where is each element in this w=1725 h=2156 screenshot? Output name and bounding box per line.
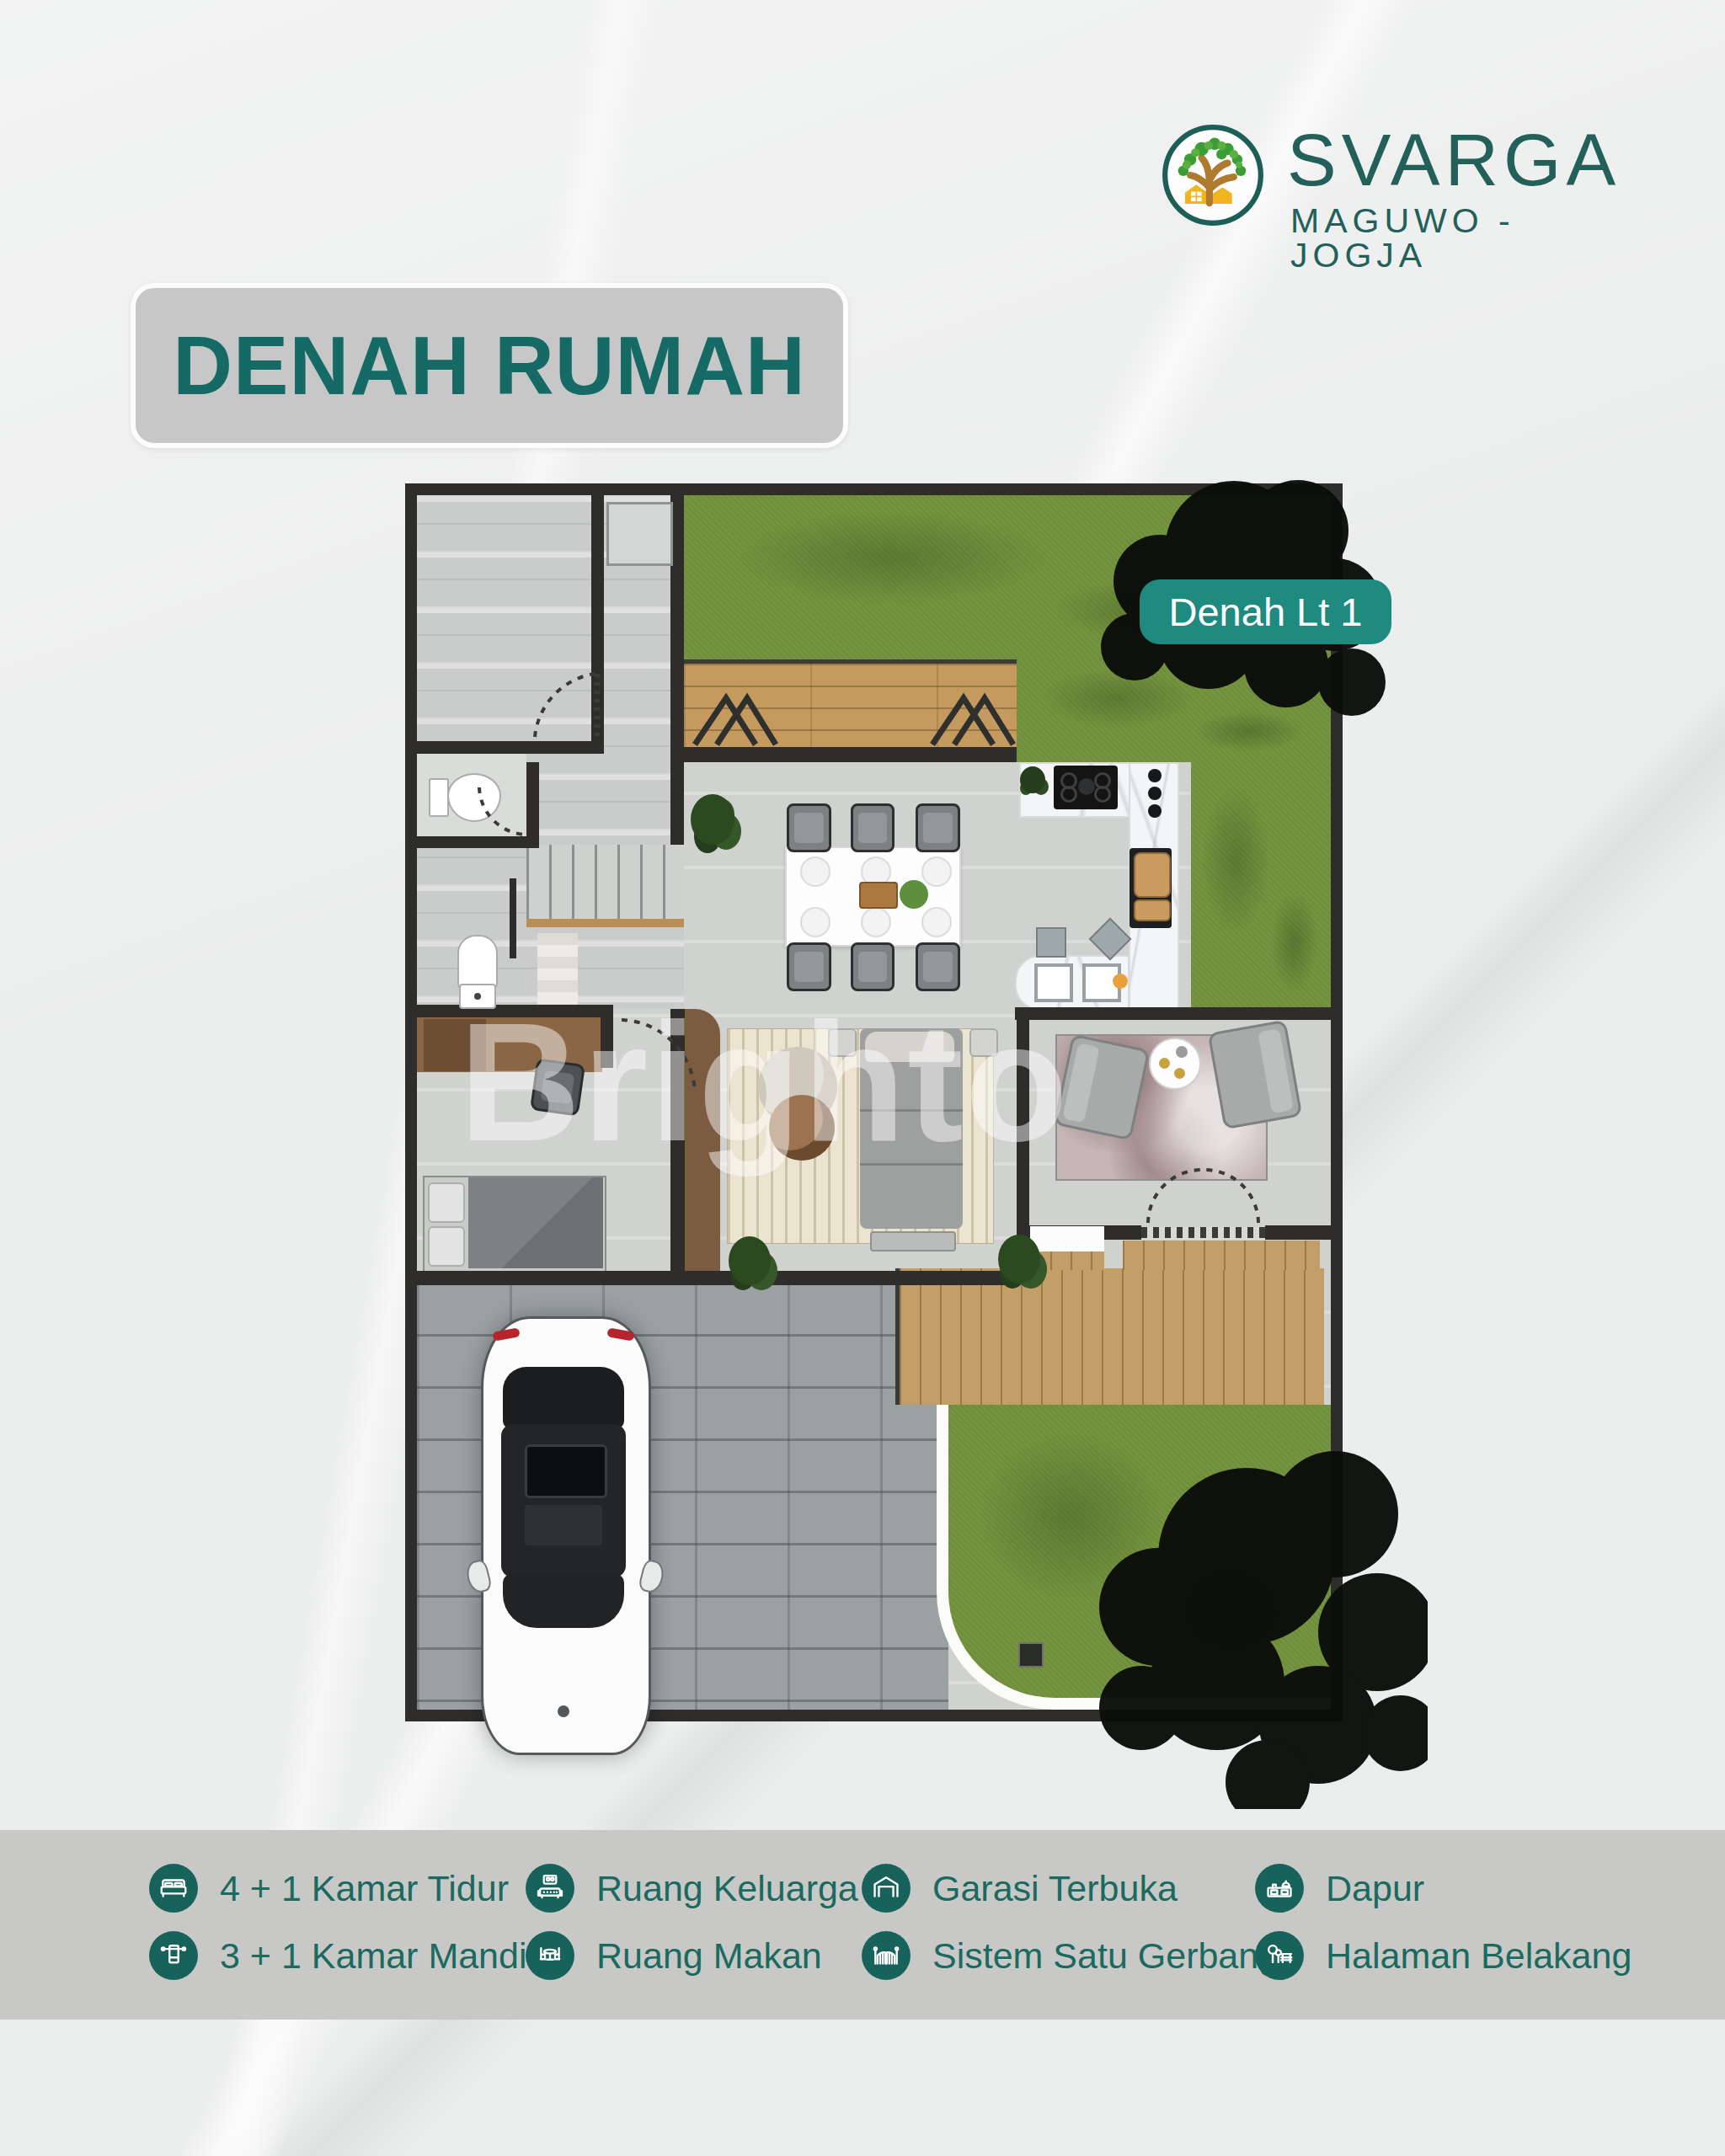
terrace-deck — [895, 1268, 1324, 1405]
folding-door-track — [1141, 1227, 1265, 1238]
legend-label: 4 + 1 Kamar Tidur — [220, 1868, 509, 1909]
fern-plant — [998, 1235, 1040, 1283]
family-room-icon — [526, 1864, 574, 1913]
terrace-step — [1030, 1251, 1104, 1270]
legend-item-kitchen: Dapur — [1255, 1864, 1632, 1913]
tree-logo-icon — [1161, 123, 1265, 227]
toilet2-bowl — [457, 935, 498, 990]
bed-bench — [870, 1231, 956, 1251]
car — [481, 1316, 646, 1750]
garden-right-strip — [1191, 762, 1331, 1020]
wall — [1265, 1225, 1331, 1240]
stair-rail — [510, 878, 516, 958]
burner-knob — [1148, 804, 1162, 818]
legend-label: Garasi Terbuka — [932, 1868, 1178, 1909]
kitchen-plant — [1020, 766, 1045, 793]
legend-band: 4 + 1 Kamar Tidur 3 + 1 Kamar Mandi Ruan… — [0, 1830, 1725, 2020]
fruit-bowl — [1113, 974, 1128, 989]
staircase — [526, 845, 684, 922]
garage-icon — [862, 1864, 911, 1913]
legend-item-bathrooms: 3 + 1 Kamar Mandi — [149, 1931, 527, 1980]
legend-label: Halaman Belakang — [1326, 1935, 1632, 1977]
windshield — [503, 1574, 624, 1628]
bathroom-icon — [149, 1931, 198, 1980]
dining-chair — [916, 942, 960, 991]
brand-location: MAGUWO - JOGJA — [1290, 204, 1632, 273]
brand-logo: SVARGA MAGUWO - JOGJA — [1161, 118, 1632, 261]
wall — [684, 747, 1017, 762]
hood-emblem — [558, 1705, 569, 1717]
wall — [591, 495, 604, 754]
deck-top — [684, 659, 1017, 751]
brand-name: SVARGA — [1287, 123, 1621, 197]
toilet-tank — [429, 778, 449, 817]
dining-chair — [851, 942, 895, 991]
table-plant — [900, 880, 928, 909]
legend-item-backyard: Halaman Belakang — [1255, 1931, 1632, 1980]
stool — [1089, 918, 1132, 961]
dining-chair — [916, 803, 960, 852]
bedroom-bed — [423, 1176, 606, 1273]
dining-plant — [691, 794, 734, 845]
sunroof — [525, 1444, 607, 1498]
floor-badge-label: Denah Lt 1 — [1169, 589, 1363, 635]
legend-label: 3 + 1 Kamar Mandi — [220, 1935, 527, 1977]
legend-item-family-room: Ruang Keluarga — [526, 1864, 858, 1913]
legend-label: Sistem Satu Gerbang — [932, 1935, 1279, 1977]
garden-drain — [1018, 1642, 1044, 1668]
wall — [417, 836, 526, 848]
duvet — [468, 1177, 603, 1268]
wall — [417, 1271, 1017, 1285]
dining-chair — [851, 803, 895, 852]
coffee-table — [1149, 1038, 1201, 1090]
flyer-page: SVARGA MAGUWO - JOGJA DENAH RUMAH — [0, 0, 1725, 2156]
legend-item-bedrooms: 4 + 1 Kamar Tidur — [149, 1864, 527, 1913]
bed-icon — [149, 1864, 198, 1913]
legend-column-4: Dapur Halaman Belakang — [1255, 1864, 1632, 1980]
legend-label: Dapur — [1326, 1868, 1424, 1909]
pillow — [428, 1182, 465, 1223]
cutting-board — [1134, 852, 1171, 898]
legend-item-dining-room: Ruang Makan — [526, 1931, 858, 1980]
wall — [526, 762, 539, 848]
page-title-box: DENAH RUMAH — [131, 283, 848, 448]
legend-column-1: 4 + 1 Kamar Tidur 3 + 1 Kamar Mandi — [149, 1864, 527, 1980]
kitchen-icon — [1255, 1864, 1304, 1913]
legend-item-garage: Garasi Terbuka — [862, 1864, 1279, 1913]
legend-column-2: Ruang Keluarga Ruang Makan — [526, 1864, 858, 1980]
page-title: DENAH RUMAH — [173, 318, 805, 414]
armchair — [1208, 1020, 1303, 1130]
stool — [1036, 927, 1066, 958]
dining-chair — [787, 942, 831, 991]
car-cabin — [501, 1424, 626, 1577]
gate-icon — [862, 1931, 911, 1980]
stair-landing-edge — [526, 919, 684, 927]
rear-window — [503, 1367, 624, 1429]
floor-badge: Denah Lt 1 — [1140, 579, 1391, 644]
wall — [417, 741, 604, 754]
legend-label: Ruang Makan — [596, 1935, 822, 1977]
watermark: Brighto — [459, 998, 1070, 1166]
serving-tray — [859, 882, 898, 909]
legend-column-3: Garasi Terbuka Sistem Satu Gerbang — [862, 1864, 1279, 1980]
burner-knob — [1148, 787, 1162, 800]
cutting-board-small — [1134, 899, 1171, 921]
fern-plant — [729, 1236, 771, 1285]
legend-item-gate: Sistem Satu Gerbang — [862, 1931, 1279, 1980]
terrace-upper-step — [1123, 1241, 1320, 1270]
backyard-icon — [1255, 1931, 1304, 1980]
legend-label: Ruang Keluarga — [596, 1868, 858, 1909]
dining-room-icon — [526, 1931, 574, 1980]
pillow — [428, 1226, 465, 1267]
terrace-doormat — [1030, 1226, 1104, 1253]
dining-chair — [787, 803, 831, 852]
tree-bottom — [1065, 1413, 1428, 1809]
dining-table — [785, 846, 961, 947]
storage-cabinet — [606, 502, 673, 566]
